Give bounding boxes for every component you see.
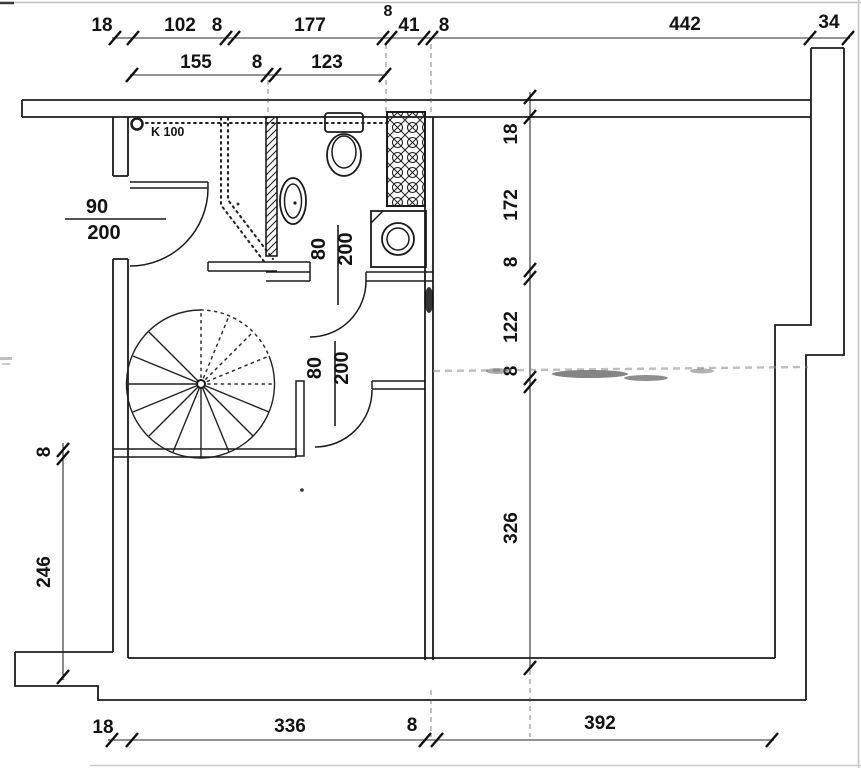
floor-plan: 18 102 8 177 8 41 8 442 34 155 8 123 8 2… [0, 0, 861, 768]
dim-left-8: 8 [34, 447, 55, 458]
stair-room-north-wall [208, 262, 277, 271]
left-wall-upper [113, 117, 128, 176]
sink [280, 178, 306, 224]
vestibule-stub-wall [296, 381, 304, 456]
hall-door [130, 182, 208, 266]
stair-newel-post [197, 380, 205, 388]
washing-machine [371, 211, 426, 267]
k100-label: K 100 [151, 125, 184, 139]
dim-top-177: 177 [294, 15, 326, 36]
lower-door-height: 200 [331, 351, 353, 384]
dim-right-18: 18 [501, 123, 522, 144]
dimension-lines [63, 38, 850, 740]
hatched-partition [266, 117, 277, 256]
hall-door-swing-arc [130, 188, 208, 266]
dim-top-8c: 8 [439, 15, 450, 36]
hall-door-leaf [130, 182, 208, 188]
hall-door-width: 90 [86, 196, 108, 218]
left-wall-lower [113, 259, 128, 658]
dim-right-122: 122 [501, 311, 522, 343]
lower-door-width: 80 [304, 357, 326, 379]
room-divider-wall [113, 449, 296, 457]
bottom-wall-outer [15, 652, 806, 700]
hall-door-height: 200 [87, 222, 120, 244]
dim-top2-8: 8 [252, 52, 263, 73]
stair-treads-solid [127, 332, 269, 458]
bath-door-width: 80 [308, 238, 330, 260]
bath-south-wall-west [266, 262, 310, 281]
dim-top-41: 41 [398, 15, 420, 36]
spiral-staircase [127, 310, 275, 458]
dim-left-246: 246 [34, 556, 55, 588]
dim-bottom-336: 336 [274, 716, 306, 737]
lower-door-swing-arc [315, 390, 372, 447]
drain-symbol [132, 119, 143, 130]
dim-top-8b: 8 [384, 3, 393, 20]
dim-top2-155: 155 [180, 52, 212, 73]
floor-plan-canvas: 18 102 8 177 8 41 8 442 34 155 8 123 8 2… [0, 0, 861, 768]
exterior-walls [15, 48, 844, 700]
dim-bottom-18: 18 [92, 717, 113, 738]
bath-south-wall-east [366, 272, 433, 281]
dim-right-326: 326 [501, 512, 522, 544]
dim-top2-123: 123 [311, 52, 343, 73]
dim-top-18: 18 [91, 15, 112, 36]
central-wall [425, 117, 433, 660]
dim-top-442: 442 [669, 14, 701, 35]
shower-shaft-hatched [387, 112, 425, 206]
dim-bottom-8: 8 [407, 715, 418, 736]
lower-door-header-wall [372, 381, 425, 389]
dim-top-34: 34 [818, 12, 840, 33]
dim-top-8a: 8 [212, 15, 223, 36]
bath-door-height: 200 [335, 232, 357, 265]
dim-right-172: 172 [501, 189, 522, 221]
dim-top-102: 102 [164, 15, 196, 36]
dim-right-8a: 8 [501, 257, 522, 268]
dim-bottom-392: 392 [584, 713, 616, 734]
interior-walls [113, 117, 433, 660]
door-labels: 90 200 80 200 80 200 [65, 196, 357, 426]
